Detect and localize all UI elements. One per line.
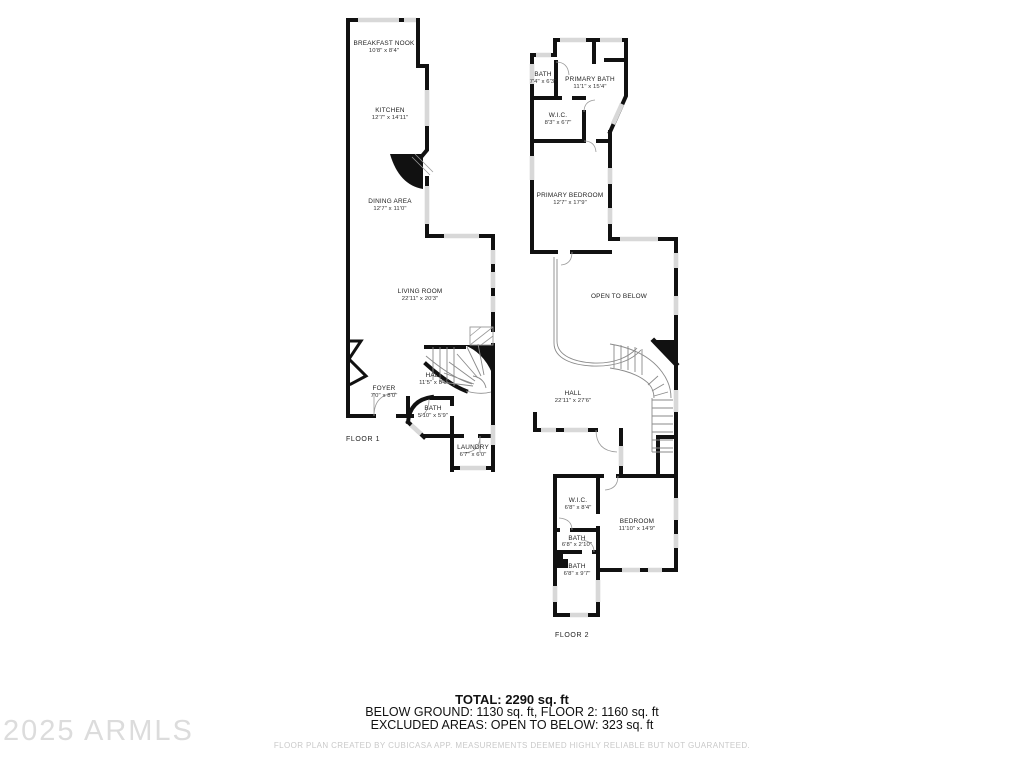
floor1-label: FLOOR 1 [346, 436, 380, 443]
room-dims-breakfast-nook: 10'8" x 8'4" [369, 48, 399, 54]
room-dims-living-room: 22'11" x 20'3" [402, 296, 439, 302]
room-label-kitchen: KITCHEN [375, 107, 405, 114]
floor1-plan: BREAKFAST NOOK 10'8" x 8'4" KITCHEN 12'7… [346, 20, 493, 470]
room-label-bedroom: BEDROOM [620, 518, 654, 525]
room-dims-wic-bottom: 6'8" x 8'4" [565, 505, 592, 511]
floor1-walls [348, 20, 493, 470]
floor2-plan: BATH 7'4" x 6'3" PRIMARY BATH 11'1" x 15… [530, 40, 676, 639]
room-label-hall-f1: HALL [426, 372, 443, 379]
room-label-bath-f2-bottom: BATH [568, 563, 586, 570]
room-dims-kitchen: 12'7" x 14'11" [372, 115, 409, 121]
room-dims-laundry: 6'7" x 6'0" [460, 452, 487, 458]
room-dims-bath-f2-bottom: 6'8" x 9'7" [564, 571, 591, 577]
room-label-bath-f1: BATH [424, 405, 442, 412]
room-dims-primary-bath: 11'1" x 15'4" [573, 84, 606, 90]
room-label-open-to-below: OPEN TO BELOW [591, 293, 648, 300]
room-label-foyer: FOYER [372, 385, 395, 392]
room-label-wic-bottom: W.I.C. [569, 497, 588, 504]
room-label-wic-top: W.I.C. [549, 112, 568, 119]
floor1-labels: BREAKFAST NOOK 10'8" x 8'4" KITCHEN 12'7… [346, 40, 489, 458]
armls-watermark: 2025 ARMLS [3, 715, 194, 748]
room-dims-bath-f1: 5'10" x 5'9" [418, 413, 448, 419]
room-label-bath-f2-mid: BATH [568, 535, 586, 542]
room-dims-bath-f2-top: 7'4" x 6'3" [530, 79, 557, 85]
room-label-laundry: LAUNDRY [457, 444, 489, 451]
room-label-primary-bedroom: PRIMARY BEDROOM [537, 192, 604, 199]
room-dims-wic-top: 8'3" x 6'7" [545, 120, 572, 126]
room-dims-hall-f1: 11'5" x 8'0" [419, 380, 449, 386]
room-dims-primary-bedroom: 12'7" x 17'9" [553, 200, 587, 206]
room-dims-bedroom: 11'10" x 14'9" [619, 526, 656, 532]
room-label-hall-f2: HALL [565, 390, 582, 397]
room-label-living-room: LIVING ROOM [398, 288, 443, 295]
room-label-primary-bath: PRIMARY BATH [565, 76, 615, 83]
room-label-breakfast-nook: BREAKFAST NOOK [354, 40, 415, 47]
floorplan-page: BREAKFAST NOOK 10'8" x 8'4" KITCHEN 12'7… [0, 0, 1024, 768]
room-label-bath-f2-top: BATH [534, 71, 552, 78]
room-dims-dining-area: 12'7" x 11'0" [373, 206, 406, 212]
floorplan-canvas: BREAKFAST NOOK 10'8" x 8'4" KITCHEN 12'7… [0, 0, 1024, 690]
room-dims-hall-f2: 22'11" x 27'6" [555, 398, 592, 404]
floor2-label: FLOOR 2 [555, 632, 589, 639]
room-label-dining-area: DINING AREA [368, 198, 412, 205]
room-dims-bath-f2-mid: 6'8" x 2'10" [562, 542, 592, 548]
room-dims-foyer: 7'0" x 8'0" [371, 393, 398, 399]
